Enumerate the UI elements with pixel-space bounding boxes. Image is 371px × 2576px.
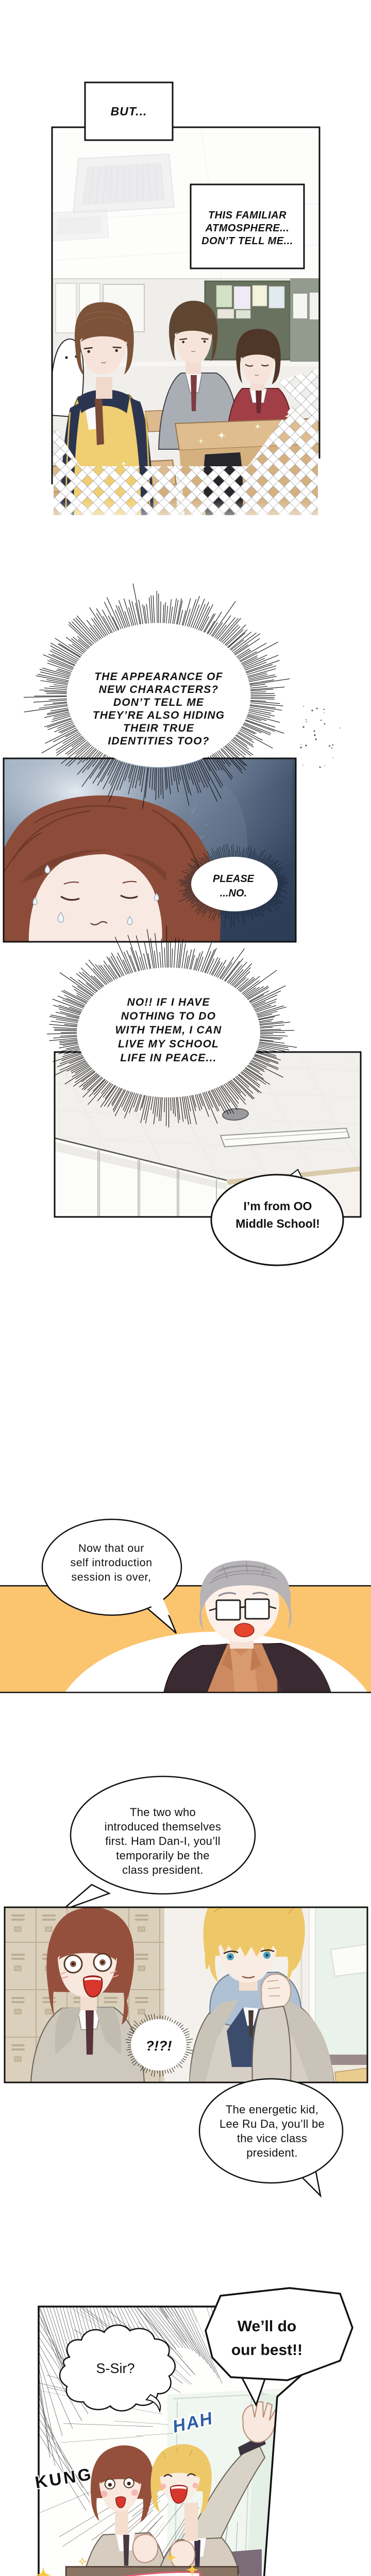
svg-text:Now that ourself introductions: Now that ourself introductionsession is … (70, 1542, 152, 1583)
svg-text:BUT...: BUT... (111, 105, 147, 118)
svg-text:S-Sir?: S-Sir? (96, 2361, 134, 2376)
svg-text:?!?!: ?!?! (146, 2038, 172, 2054)
svg-text:THIS FAMILIARATMOSPHERE...DON’: THIS FAMILIARATMOSPHERE...DON’T TELL ME.… (201, 210, 293, 247)
svg-text:NO!! IF I HAVENOTHING TO DOWIT: NO!! IF I HAVENOTHING TO DOWITH THEM, I … (115, 996, 222, 1064)
